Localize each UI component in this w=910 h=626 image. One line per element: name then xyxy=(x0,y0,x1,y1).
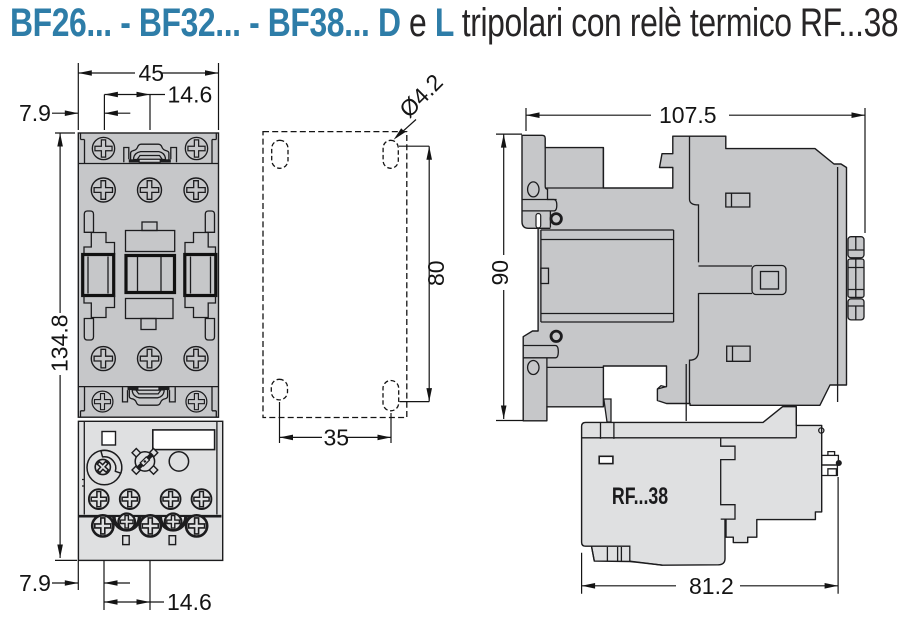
svg-text:14.6: 14.6 xyxy=(168,82,213,108)
svg-text:7.9: 7.9 xyxy=(19,570,51,596)
svg-text:Ø4.2: Ø4.2 xyxy=(394,69,448,123)
svg-text:134.8: 134.8 xyxy=(47,314,73,372)
svg-text:90: 90 xyxy=(487,260,513,286)
svg-text:RF...38: RF...38 xyxy=(612,484,668,510)
svg-text:107.5: 107.5 xyxy=(659,102,717,128)
svg-text:81.2: 81.2 xyxy=(689,573,734,599)
svg-text:45: 45 xyxy=(139,60,165,86)
svg-text:7.9: 7.9 xyxy=(19,100,51,126)
svg-text:14.6: 14.6 xyxy=(167,589,212,615)
svg-text:35: 35 xyxy=(324,425,350,451)
svg-text:80: 80 xyxy=(423,260,449,286)
